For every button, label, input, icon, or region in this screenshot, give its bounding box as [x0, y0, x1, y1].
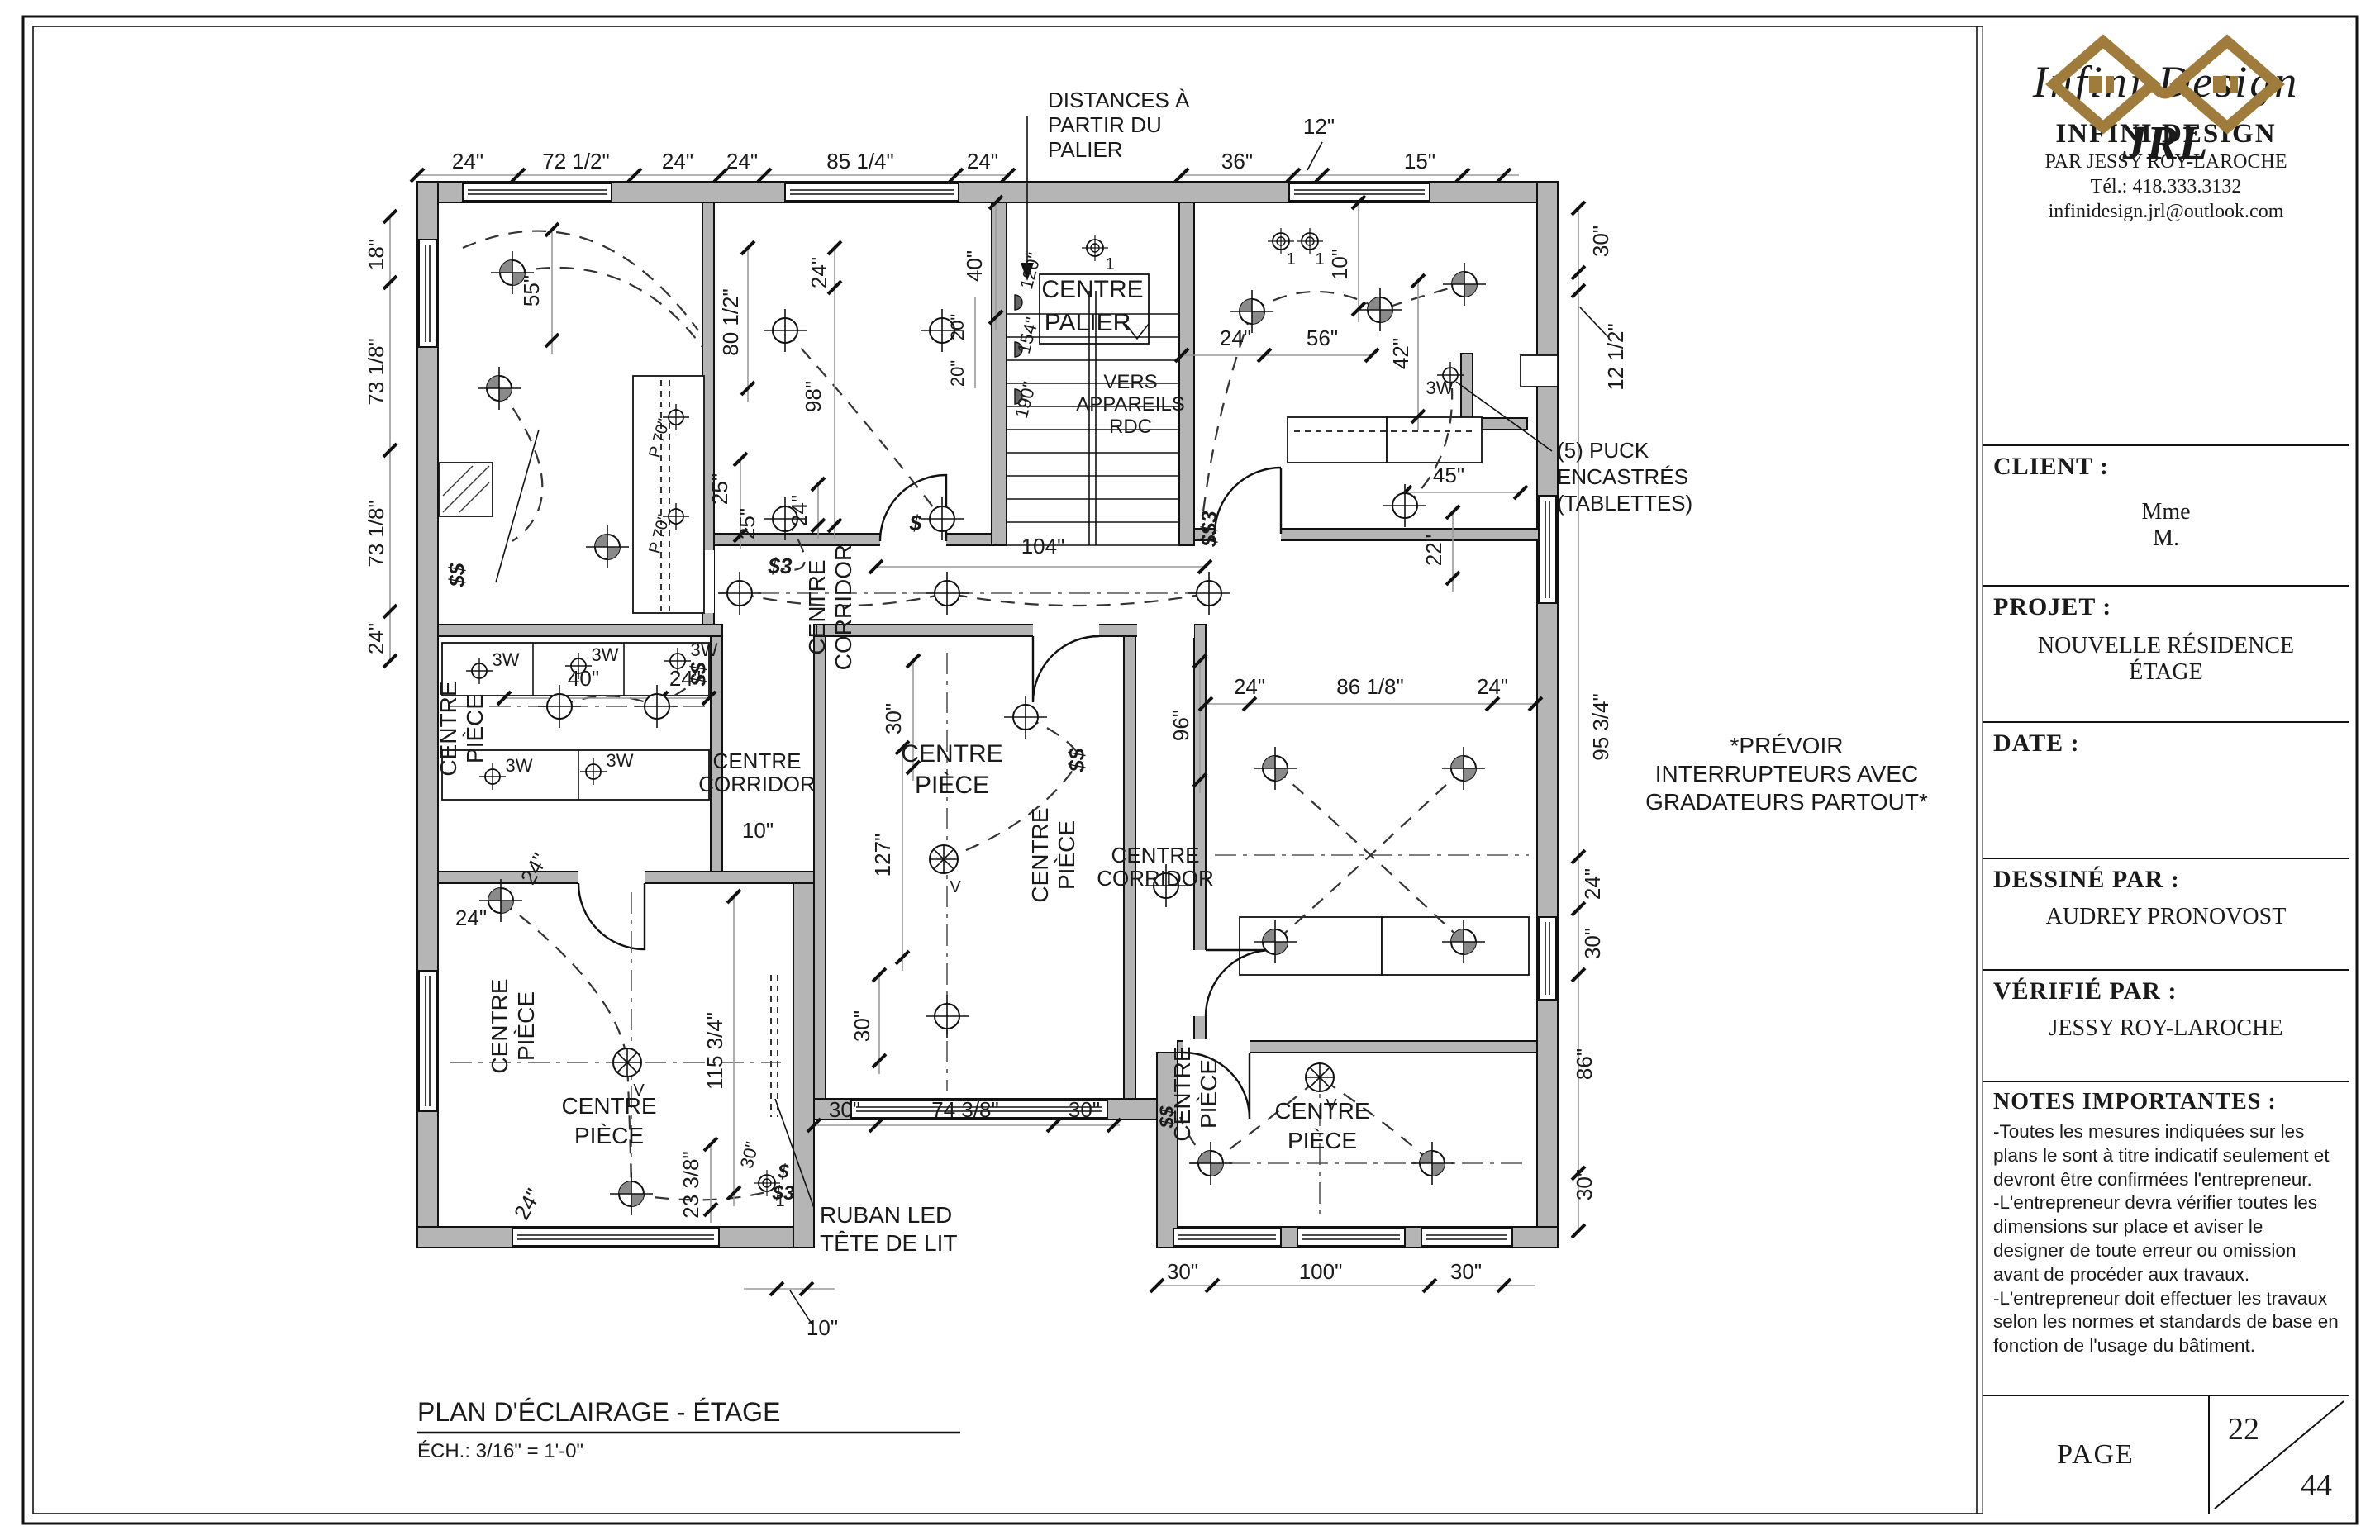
light-open: [1188, 572, 1230, 615]
plan-label: 115 3/4": [702, 1012, 727, 1090]
plan-label: 10": [1327, 249, 1352, 280]
plan-label: 30": [850, 1010, 874, 1042]
plan-label: 30": [1450, 1259, 1482, 1284]
plan-label: 80 1/2": [718, 288, 743, 356]
plan-label: ÉCH.: 3/16" = 1'-0": [417, 1440, 583, 1462]
plan-label: 24": [1580, 868, 1605, 900]
plan-label: 3W: [1426, 378, 1454, 398]
drawn-by-label: DESSINÉ PAR :: [1993, 866, 2339, 894]
plan-label: TÊTE DE LIT: [820, 1230, 957, 1256]
plan-label: 30": [1588, 226, 1613, 257]
switch-symbol: $$: [1064, 748, 1089, 772]
plan-label: 96": [1169, 710, 1193, 741]
plan-label: CENTRE: [1111, 843, 1200, 867]
plan-label: 12 1/2": [1603, 323, 1628, 391]
verified-by-label: VÉRIFIÉ PAR :: [1993, 977, 2339, 1005]
plan-label: CENTRE: [1274, 1098, 1369, 1124]
plan-label: INTERRUPTEURS AVEC: [1655, 761, 1918, 787]
plan-label: 40": [962, 250, 987, 282]
switch-symbol: $3: [768, 554, 793, 578]
client-label: CLIENT :: [1993, 453, 2339, 481]
plan-label: 25": [707, 473, 732, 505]
plan-label: *PRÉVOIR: [1730, 733, 1844, 758]
plan-label: 12": [1303, 114, 1335, 139]
plan-label: PIÈCE: [915, 772, 989, 799]
date-label: DATE :: [1993, 730, 2339, 758]
plan-label: CENTRE: [1027, 807, 1053, 902]
light-open: [926, 995, 969, 1038]
drawn-by-section: DESSINÉ PAR : AUDREY PRONOVOST: [1983, 859, 2349, 971]
plan-label: 30": [736, 1139, 764, 1171]
date-section: DATE :: [1983, 723, 2349, 859]
plan-label: 100": [1299, 1259, 1343, 1284]
plan-label: 85 1/4": [826, 149, 894, 173]
page-number-cell: 22 44: [2208, 1396, 2349, 1514]
title-block-logo-section: Infini Design JRL INFINI DESIGN PAR JESS…: [1983, 26, 2349, 446]
plan-label: PIÈCE: [1288, 1128, 1357, 1153]
plan-label: 72 1/2": [542, 149, 610, 173]
walls: [417, 182, 1558, 1248]
plan-label: V: [950, 878, 961, 896]
plan-label: 3W: [506, 755, 533, 776]
plan-label: 73 1/8": [364, 500, 388, 568]
switch-symbol: $3: [772, 1182, 795, 1205]
light-open: [764, 309, 807, 352]
title-block: Infini Design JRL INFINI DESIGN PAR JESS…: [1983, 26, 2349, 1514]
plan-label: 45": [1433, 463, 1464, 487]
plan-label: 1: [1286, 250, 1295, 269]
plan-label: 30": [1572, 1169, 1597, 1200]
light-fan: [1306, 1063, 1334, 1091]
plan-label: 1: [1315, 250, 1324, 269]
plan-label: 74 3/8": [931, 1097, 999, 1122]
plan-label: PIÈCE: [462, 694, 488, 763]
plan-label: 73 1/8": [364, 338, 388, 406]
plan-label: CENTRE: [804, 559, 830, 654]
light-open: [1383, 484, 1426, 527]
plan-label: V: [1326, 1096, 1337, 1115]
plan-label: (TABLETTES): [1557, 491, 1692, 516]
switch-symbol: $$: [445, 563, 469, 587]
plan-label: 56": [1307, 326, 1338, 350]
plan-label: 95 3/4": [1588, 693, 1613, 761]
project-label: PROJET :: [1993, 593, 2339, 621]
switch-symbol: $$: [686, 662, 711, 687]
plan-label: PALIER: [1045, 309, 1131, 336]
light-fixtures: [466, 228, 1486, 1215]
plan-label: CENTRE: [901, 740, 1002, 768]
page-number: 22: [2228, 1411, 2259, 1447]
verified-by-section: VÉRIFIÉ PAR : JESSY ROY-LAROCHE: [1983, 971, 2349, 1082]
plan-label: PIÈCE: [574, 1123, 644, 1148]
note-item: -Toutes les mesures indiquées sur les pl…: [1993, 1120, 2339, 1191]
plan-label: 10": [742, 818, 773, 843]
plan-label: PALIER: [1048, 137, 1123, 162]
light-pot: [1443, 263, 1486, 306]
project-name-line1: NOUVELLE RÉSIDENCE: [1993, 633, 2339, 659]
plan-label: 24": [1234, 674, 1265, 699]
plan-label: 42": [1388, 338, 1413, 369]
plan-label: 24": [662, 149, 693, 173]
plan-label: PIÈCE: [1054, 820, 1079, 890]
plan-label: 98": [801, 381, 826, 412]
plan-label: 86": [1572, 1048, 1597, 1080]
light-pot: [1189, 1142, 1232, 1185]
plan-label: 24": [967, 149, 998, 173]
switch-symbol: $$: [1156, 1105, 1178, 1129]
plan-label: 3W: [607, 750, 634, 771]
plan-label: 20": [947, 360, 968, 387]
company-phone: Tél.: 418.333.3132: [1993, 174, 2339, 199]
plan-label: 24": [1477, 674, 1508, 699]
plan-label: 25": [735, 508, 759, 539]
plan-label: 3W: [493, 649, 520, 670]
plan-label: 22": [1421, 535, 1446, 566]
plan-label: 3W: [691, 639, 718, 660]
light-pot: [478, 367, 521, 410]
plan-label: 36": [1221, 149, 1253, 173]
plan-label: 30": [1069, 1097, 1100, 1122]
plan-label: 30": [1580, 928, 1605, 959]
plan-label: 24": [364, 623, 388, 654]
light-pot: [1442, 747, 1485, 790]
plan-label: CENTRE: [713, 749, 802, 773]
light-pot: [1254, 747, 1297, 790]
plan-label: 30": [829, 1097, 860, 1122]
light-pot: [1411, 1142, 1454, 1185]
page-label: PAGE: [1983, 1396, 2208, 1514]
plan-label: CORRIDOR: [831, 544, 856, 670]
plan-label: 55": [519, 275, 544, 307]
verified-by-value: JESSY ROY-LAROCHE: [1993, 1015, 2339, 1042]
plan-label: 24": [452, 149, 483, 173]
plan-label: 154": [1013, 315, 1043, 355]
company-email: infinidesign.jrl@outlook.com: [1993, 199, 2339, 224]
light-open: [926, 572, 969, 615]
plan-label: DISTANCES À: [1048, 88, 1190, 112]
light-pot: [1359, 288, 1402, 331]
plan-label: CENTRE: [436, 681, 461, 776]
plan-label: 120": [1016, 250, 1045, 291]
plan-label: APPAREILS: [1076, 393, 1185, 416]
plan-label: PARTIR DU: [1048, 112, 1162, 137]
switch-symbol: $$3: [1197, 511, 1221, 548]
page-section: PAGE 22 44: [1983, 1396, 2349, 1514]
plan-label: CENTRE: [1041, 276, 1143, 303]
light-pot: [586, 525, 629, 568]
switch-symbol: $: [777, 1161, 789, 1183]
drawing-sheet: 24"72 1/2"24"24"85 1/4"24"36"12"15"18"73…: [0, 0, 2380, 1540]
plan-label: VERS: [1103, 371, 1157, 393]
project-section: PROJET : NOUVELLE RÉSIDENCE ÉTAGE: [1983, 587, 2349, 723]
light-fan: [613, 1048, 641, 1077]
plan-label: 190": [1011, 379, 1040, 420]
light-fan: [930, 845, 958, 873]
light-open: [1004, 696, 1047, 739]
plan-label: RDC: [1109, 416, 1152, 438]
logo-monogram: JRL: [2121, 116, 2207, 167]
plan-label: 24": [787, 495, 812, 526]
drawn-by-value: AUDREY PRONOVOST: [1993, 904, 2339, 930]
page-total: 44: [2301, 1467, 2332, 1504]
plan-label: 18": [364, 239, 388, 270]
plan-label: 15": [1404, 149, 1435, 173]
plan-label: 23 3/8": [678, 1151, 703, 1219]
plan-label: RUBAN LED: [820, 1202, 952, 1228]
plan-label: 30": [881, 703, 906, 734]
client-name-line2: M.: [1993, 525, 2339, 552]
plan-label: 86 1/8": [1336, 674, 1404, 699]
plan-label: 24": [455, 905, 487, 930]
plan-label: 24": [726, 149, 758, 173]
plan-label: 30": [1167, 1259, 1198, 1284]
project-name-line2: ÉTAGE: [1993, 659, 2339, 686]
plan-label: 40": [568, 666, 599, 691]
plan-label: 1: [1105, 255, 1114, 273]
plan-label: CORRIDOR: [698, 772, 816, 796]
plan-label: (5) PUCK: [1557, 438, 1649, 463]
notes-label: NOTES IMPORTANTES :: [1993, 1089, 2339, 1115]
plan-label: 10": [807, 1315, 838, 1340]
plan-label: 3W: [592, 644, 619, 665]
plan-label: 24": [807, 257, 831, 288]
plan-label: 127": [870, 834, 895, 877]
plan-label: PIÈCE: [513, 991, 539, 1061]
plan-label: V: [633, 1081, 645, 1100]
plan-label: 24": [509, 1184, 546, 1224]
plan-label: PLAN D'ÉCLAIRAGE - ÉTAGE: [417, 1397, 780, 1427]
light-rec1: [1082, 235, 1108, 261]
plan-label: 20": [947, 314, 968, 340]
plan-label: GRADATEURS PARTOUT*: [1645, 789, 1928, 815]
light-open: [718, 572, 761, 615]
note-item: -L'entrepreneur doit effectuer les trava…: [1993, 1287, 2339, 1358]
plan-label: 24": [1220, 326, 1251, 350]
client-section: CLIENT : Mme M.: [1983, 446, 2349, 587]
jrl-logo-icon: JRL: [1983, 26, 2347, 167]
notes-section: NOTES IMPORTANTES : -Toutes les mesures …: [1983, 1082, 2349, 1396]
plan-label: ENCASTRÉS: [1557, 464, 1688, 489]
light-wall: [1015, 295, 1022, 310]
plan-label: PIÈCE: [1196, 1059, 1221, 1129]
plan-label: CORRIDOR: [1097, 866, 1214, 891]
client-name-line1: Mme: [1993, 499, 2339, 525]
plan-label: 104": [1021, 534, 1065, 558]
light-pot: [610, 1172, 653, 1215]
plan-label: CENTRE: [487, 978, 512, 1073]
windows: [419, 183, 1556, 1246]
note-item: -L'entrepreneur devra vérifier toutes le…: [1993, 1191, 2339, 1286]
switch-symbol: $: [909, 511, 922, 535]
